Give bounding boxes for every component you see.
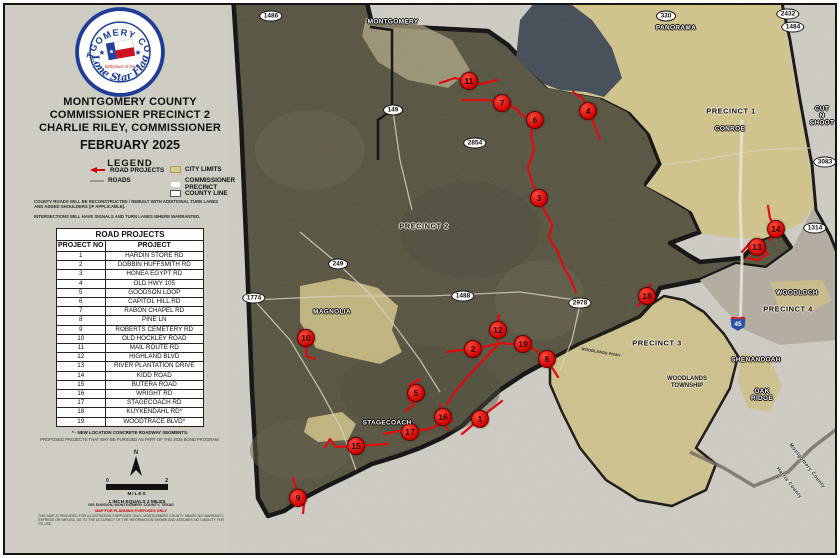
scale-left: 0 <box>106 478 109 484</box>
project-marker-6: 6 <box>526 111 544 129</box>
highway-shield-1484: 1484 <box>781 22 804 33</box>
table-row: 2DOBBIN HUFFSMITH RD <box>57 261 204 270</box>
legend-label: ROADS <box>108 177 131 184</box>
place-label-precinct-4: PRECINCT 4 <box>763 305 813 314</box>
place-label-harris-county: Harris County <box>775 466 803 500</box>
map-canvas: 45 1486330243214841492854308313142491774… <box>3 3 837 555</box>
table-row: 6CAPITOL HILL RD <box>57 298 204 307</box>
roads-line-icon <box>90 180 104 182</box>
project-marker-14: 14 <box>767 220 785 238</box>
project-name: OLD HWY 105 <box>105 279 203 288</box>
highway-shield-1774: 1774 <box>242 293 265 304</box>
highway-shield-1486: 1486 <box>259 11 282 22</box>
project-no: 7 <box>57 307 106 316</box>
legend-road-projects: ROAD PROJECTS <box>90 166 164 174</box>
table-row: 9ROBERTS CEMETERY RD <box>57 325 204 334</box>
footnote-asterisk: * - NEW LOCATION CONCRETE ROADWAY SEGMEN… <box>28 430 232 435</box>
project-no: 11 <box>57 344 106 353</box>
legend-label: ROAD PROJECTS <box>110 167 164 174</box>
legend-label: COUNTY LINE <box>185 190 228 197</box>
info-panel: MONTGOMERY COUNTY Lone Star Flag ★ ★ ★ B… <box>28 3 232 555</box>
table-row: 1HARDIN STORE RD <box>57 252 204 261</box>
map-date: FEBRUARY 2025 <box>28 138 232 152</box>
table-row: 4OLD HWY 105 <box>57 279 204 288</box>
scale-bar: 0 2 MILES 1 INCH EQUALS 2 MILES <box>106 478 168 505</box>
place-label-shenandoah: SHENANDOAH <box>731 357 781 364</box>
project-no: 16 <box>57 390 106 399</box>
project-name: WRIGHT RD <box>105 390 203 399</box>
highway-shield-330: 330 <box>656 11 676 22</box>
project-no: 12 <box>57 353 106 362</box>
project-name: KUYKENDAHL RD* <box>105 408 203 417</box>
table-row: 12HIGHLAND BLVD <box>57 353 204 362</box>
title-line3: CHARLIE RILEY, COMMISSIONER <box>28 122 232 135</box>
highway-shield-249: 249 <box>328 259 348 270</box>
project-name: DOBBIN HUFFSMITH RD <box>105 261 203 270</box>
project-marker-18: 18 <box>638 287 656 305</box>
place-label-montgomery: MONTGOMERY <box>368 19 419 26</box>
project-no: 3 <box>57 270 106 279</box>
project-marker-15: 15 <box>347 437 365 455</box>
title-line1: MONTGOMERY COUNTY <box>28 96 232 109</box>
map-poster-page: 45 1486330243214841492854308313142491774… <box>0 0 840 558</box>
project-no: 5 <box>57 288 106 297</box>
note-1: COUNTY ROADS WILL BE RECONSTRUCTED / REB… <box>34 199 228 210</box>
highway-shield-1488: 1488 <box>451 291 474 302</box>
table-row: 18KUYKENDAHL RD* <box>57 408 204 417</box>
project-name: HARDIN STORE RD <box>105 252 203 261</box>
scale-right: 2 <box>165 478 168 484</box>
project-marker-9: 9 <box>289 489 307 507</box>
table-row: 19WOODTRACE BLVD* <box>57 417 204 426</box>
project-no: 10 <box>57 334 106 343</box>
project-name: WOODTRACE BLVD* <box>105 417 203 426</box>
place-label-stagecoach: STAGECOACH <box>363 420 412 427</box>
seal-star-right: ★ <box>135 48 142 57</box>
project-marker-4: 4 <box>579 102 597 120</box>
project-name: RIVER PLANTATION DRIVE <box>105 362 203 371</box>
project-name: HIGHLAND BLVD <box>105 353 203 362</box>
highway-shield-2978: 2978 <box>568 298 591 309</box>
interstate-45-shield: 45 <box>731 315 746 331</box>
project-marker-5: 5 <box>407 384 425 402</box>
highway-shield-3083: 3083 <box>813 157 836 168</box>
project-marker-3: 3 <box>530 189 548 207</box>
project-marker-13: 13 <box>748 238 766 256</box>
credit-disclaimer: THIS MAP IS PROVIDED FOR ILLUSTRATION PU… <box>38 515 224 527</box>
project-name: RABON CHAPEL RD <box>105 307 203 316</box>
credit-red-note: MAP FOR PLANNING PURPOSES ONLY <box>38 509 224 513</box>
place-label-woodloch: WOODLOCH <box>776 290 818 297</box>
project-no: 18 <box>57 408 106 417</box>
place-label-conroe: CONROE <box>715 126 745 133</box>
project-name: ROBERTS CEMETERY RD <box>105 325 203 334</box>
north-arrow-icon <box>129 456 143 478</box>
project-name: PINE LN <box>105 316 203 325</box>
place-label-oak-ridge: OAK RIDGE <box>751 388 773 402</box>
col-project: PROJECT <box>105 241 203 252</box>
place-label-woodlands-township: WOODLANDS TOWNSHIP <box>667 376 707 390</box>
table-row: 7RABON CHAPEL RD <box>57 307 204 316</box>
table-row: 17STAGECOACH RD <box>57 399 204 408</box>
project-name: HONEA EGYPT RD <box>105 270 203 279</box>
montgomery-county-seal: MONTGOMERY COUNTY Lone Star Flag ★ ★ ★ B… <box>74 6 166 98</box>
project-name: GOODSON LOOP <box>105 288 203 297</box>
project-marker-11: 11 <box>460 72 478 90</box>
project-no: 17 <box>57 399 106 408</box>
poster-title: MONTGOMERY COUNTY COMMISSIONER PRECINCT … <box>28 96 232 135</box>
project-marker-7: 7 <box>493 94 511 112</box>
project-no: 8 <box>57 316 106 325</box>
commissioner-precinct-swatch-icon <box>170 181 181 188</box>
table-row: 8PINE LN <box>57 316 204 325</box>
project-no: 19 <box>57 417 106 426</box>
project-marker-12: 12 <box>489 321 507 339</box>
seal-star-left: ★ <box>99 48 106 57</box>
table-row: 11MAIL ROUTE RD <box>57 344 204 353</box>
north-label: N <box>124 450 148 456</box>
legend-county-line: COUNTY LINE <box>170 190 228 197</box>
table-row: 3HONEA EGYPT RD <box>57 270 204 279</box>
project-marker-19: 19 <box>514 335 532 353</box>
highway-shield-1314: 1314 <box>803 223 826 234</box>
project-no: 9 <box>57 325 106 334</box>
county-line-swatch-icon <box>170 190 181 197</box>
place-label-precinct-3: PRECINCT 3 <box>632 339 682 348</box>
table-row: 14KIDD ROAD <box>57 371 204 380</box>
legend-roads: ROADS <box>90 177 131 184</box>
title-line2: COMMISSIONER PRECINCT 2 <box>28 109 232 122</box>
north-arrow: N <box>124 450 148 478</box>
road-projects-arrow-icon <box>90 166 106 174</box>
credit-source: GIS DIVISION, MONTGOMERY COUNTY, TEXAS <box>38 503 224 507</box>
project-no: 13 <box>57 362 106 371</box>
table-row: 5GOODSON LOOP <box>57 288 204 297</box>
col-project-no: PROJECT NO <box>57 241 106 252</box>
project-name: KIDD ROAD <box>105 371 203 380</box>
project-no: 4 <box>57 279 106 288</box>
project-marker-10: 10 <box>297 329 315 347</box>
highway-shield-2432: 2432 <box>776 9 799 20</box>
table-row: 13RIVER PLANTATION DRIVE <box>57 362 204 371</box>
place-label-cut-n-shoot: CUT N SHOOT <box>810 106 835 127</box>
table-row: 10OLD HOCKLEY ROAD <box>57 334 204 343</box>
project-name: MAIL ROUTE RD <box>105 344 203 353</box>
note-2: INTERSECTIONS WILL HAVE SIGNALS AND TURN… <box>34 214 228 219</box>
place-label-magnolia: MAGNOLIA <box>313 309 351 316</box>
project-no: 14 <box>57 371 106 380</box>
project-marker-2: 2 <box>464 340 482 358</box>
project-no: 2 <box>57 261 106 270</box>
legend-city-limits: CITY LIMITS <box>170 166 222 173</box>
map-credits: GIS DIVISION, MONTGOMERY COUNTY, TEXAS M… <box>38 503 224 527</box>
project-name: OLD HOCKLEY ROAD <box>105 334 203 343</box>
place-label-precinct-2: PRECINCT 2 <box>399 222 449 231</box>
poster-frame: 45 1486330243214841492854308313142491774… <box>3 3 837 555</box>
project-marker-16: 16 <box>434 408 452 426</box>
place-label-woodlands-pkwy: WOODLANDS PKWY <box>581 346 621 358</box>
table-title: ROAD PROJECTS <box>57 229 204 241</box>
scale-unit: MILES <box>106 491 168 496</box>
project-no: 1 <box>57 252 106 261</box>
place-label-montgomery-county: Montgomery County <box>788 442 827 489</box>
project-no: 15 <box>57 380 106 389</box>
project-name: BUTERA ROAD <box>105 380 203 389</box>
table-row: 16WRIGHT RD <box>57 390 204 399</box>
project-no: 6 <box>57 298 106 307</box>
svg-text:Birthplace of the: Birthplace of the <box>105 64 136 69</box>
highway-shield-2854: 2854 <box>463 138 486 149</box>
footnote-bond: PROPOSED PROJECTS THAT MAY BE PURSUED AS… <box>28 437 232 442</box>
highway-shield-149: 149 <box>383 105 403 116</box>
project-marker-1: 1 <box>471 410 489 428</box>
legend-label: COMMISSIONER PRECINCT <box>185 177 235 191</box>
legend-commissioner-precinct: COMMISSIONER PRECINCT <box>170 177 235 191</box>
project-name: CAPITOL HILL RD <box>105 298 203 307</box>
legend-label: CITY LIMITS <box>185 166 222 173</box>
place-label-panorama: PANORAMA <box>656 25 696 32</box>
map-notes: COUNTY ROADS WILL BE RECONSTRUCTED / REB… <box>34 199 228 223</box>
scale-bar-rule <box>106 484 168 490</box>
city-limits-swatch-icon <box>170 166 181 173</box>
project-name: STAGECOACH RD <box>105 399 203 408</box>
project-marker-8: 8 <box>538 350 556 368</box>
table-row: 15BUTERA ROAD <box>57 380 204 389</box>
place-label-precinct-1: PRECINCT 1 <box>706 107 756 116</box>
road-projects-table: ROAD PROJECTS PROJECT NO PROJECT 1HARDIN… <box>56 228 204 427</box>
